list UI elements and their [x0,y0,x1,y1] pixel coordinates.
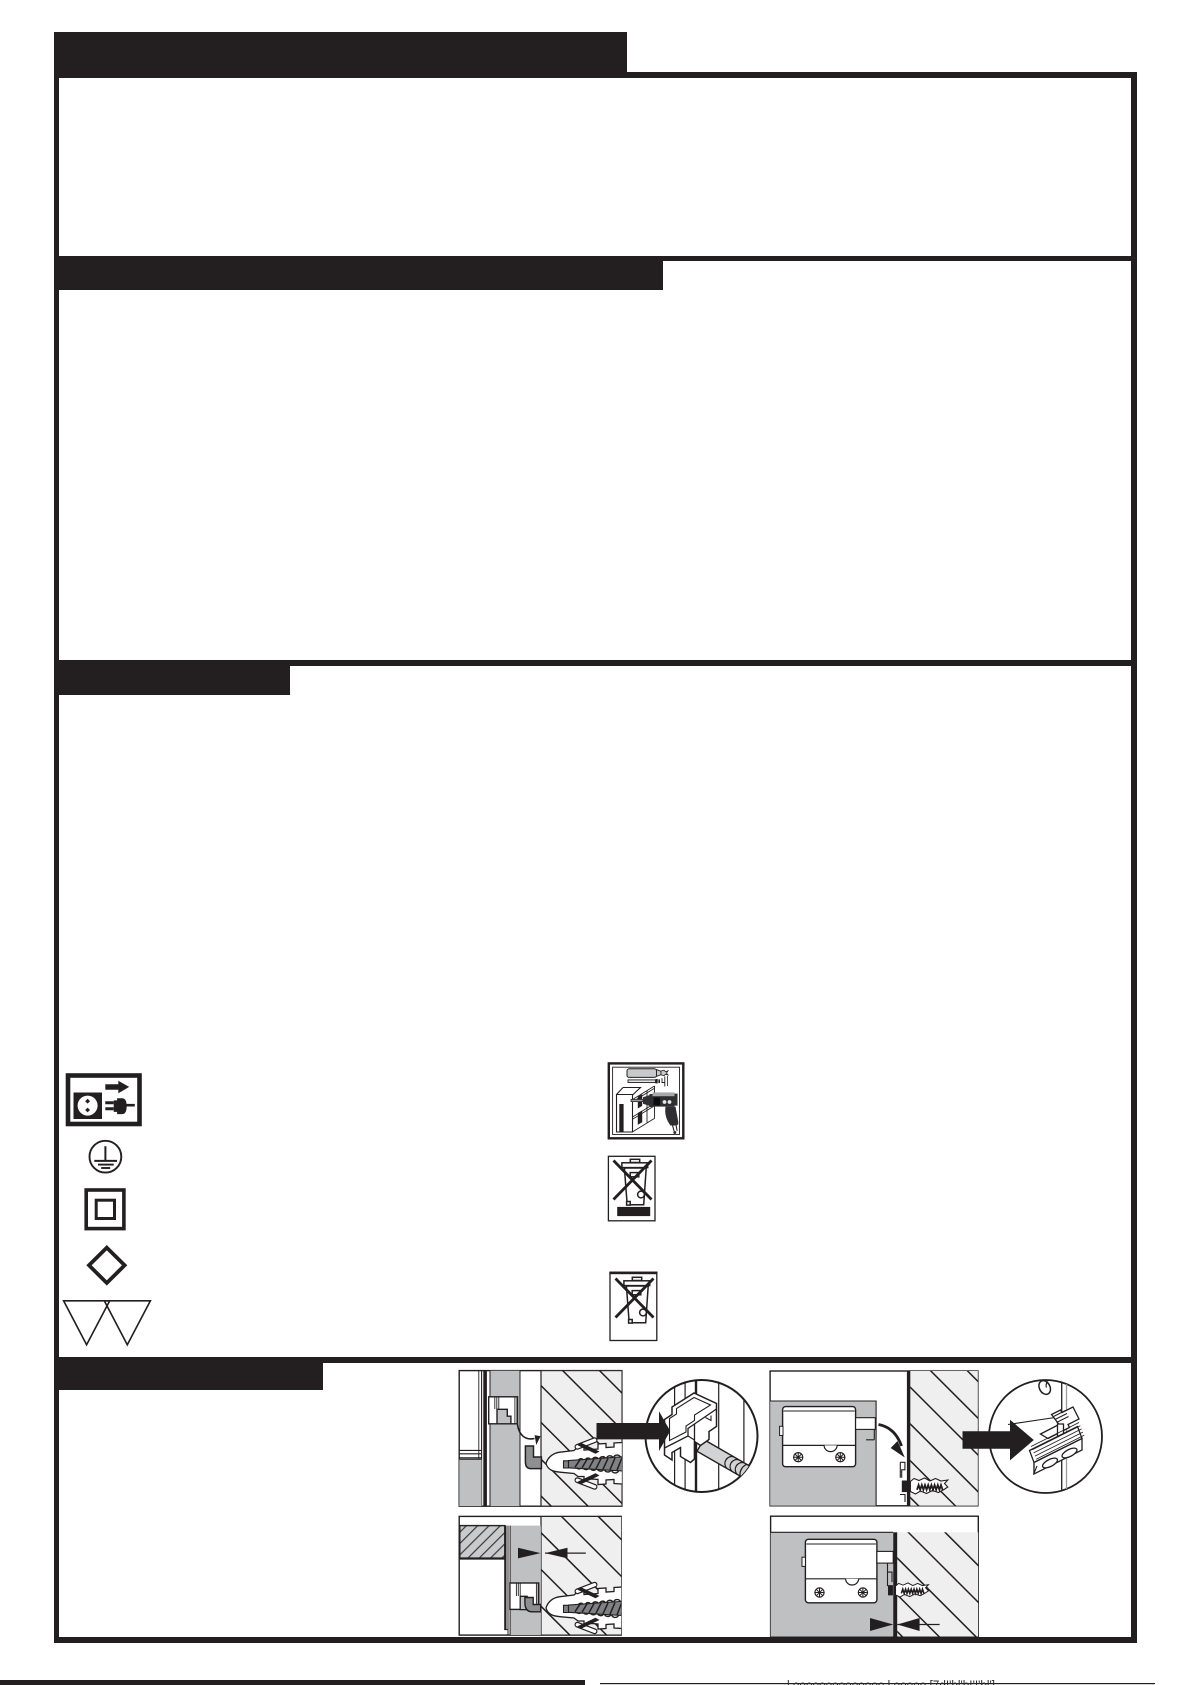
svg-text:l eeeeeeeeeeeeee l eeeee [7d!': l eeeeeeeeeeeeee l eeeee [7d!'bl'b!'!'bl… [787,1678,995,1685]
